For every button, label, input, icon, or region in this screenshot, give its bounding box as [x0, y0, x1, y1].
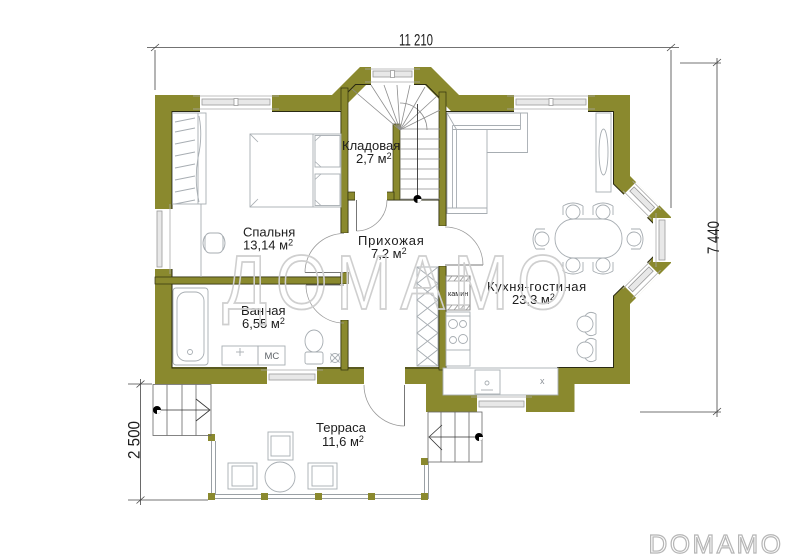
svg-text:МС: МС	[265, 351, 280, 362]
svg-text:7 440: 7 440	[704, 221, 723, 254]
svg-text:DOMAMO: DOMAMO	[649, 529, 784, 559]
svg-text:ДОМАМО: ДОМАМО	[222, 240, 577, 326]
svg-text:11 210: 11 210	[399, 31, 433, 50]
svg-text:11,6 м2: 11,6 м2	[322, 434, 364, 449]
svg-text:2 500: 2 500	[125, 421, 144, 459]
svg-text:x: x	[540, 376, 545, 386]
svg-text:2,7 м2: 2,7 м2	[356, 151, 392, 166]
svg-text:Терраса: Терраса	[316, 420, 367, 435]
